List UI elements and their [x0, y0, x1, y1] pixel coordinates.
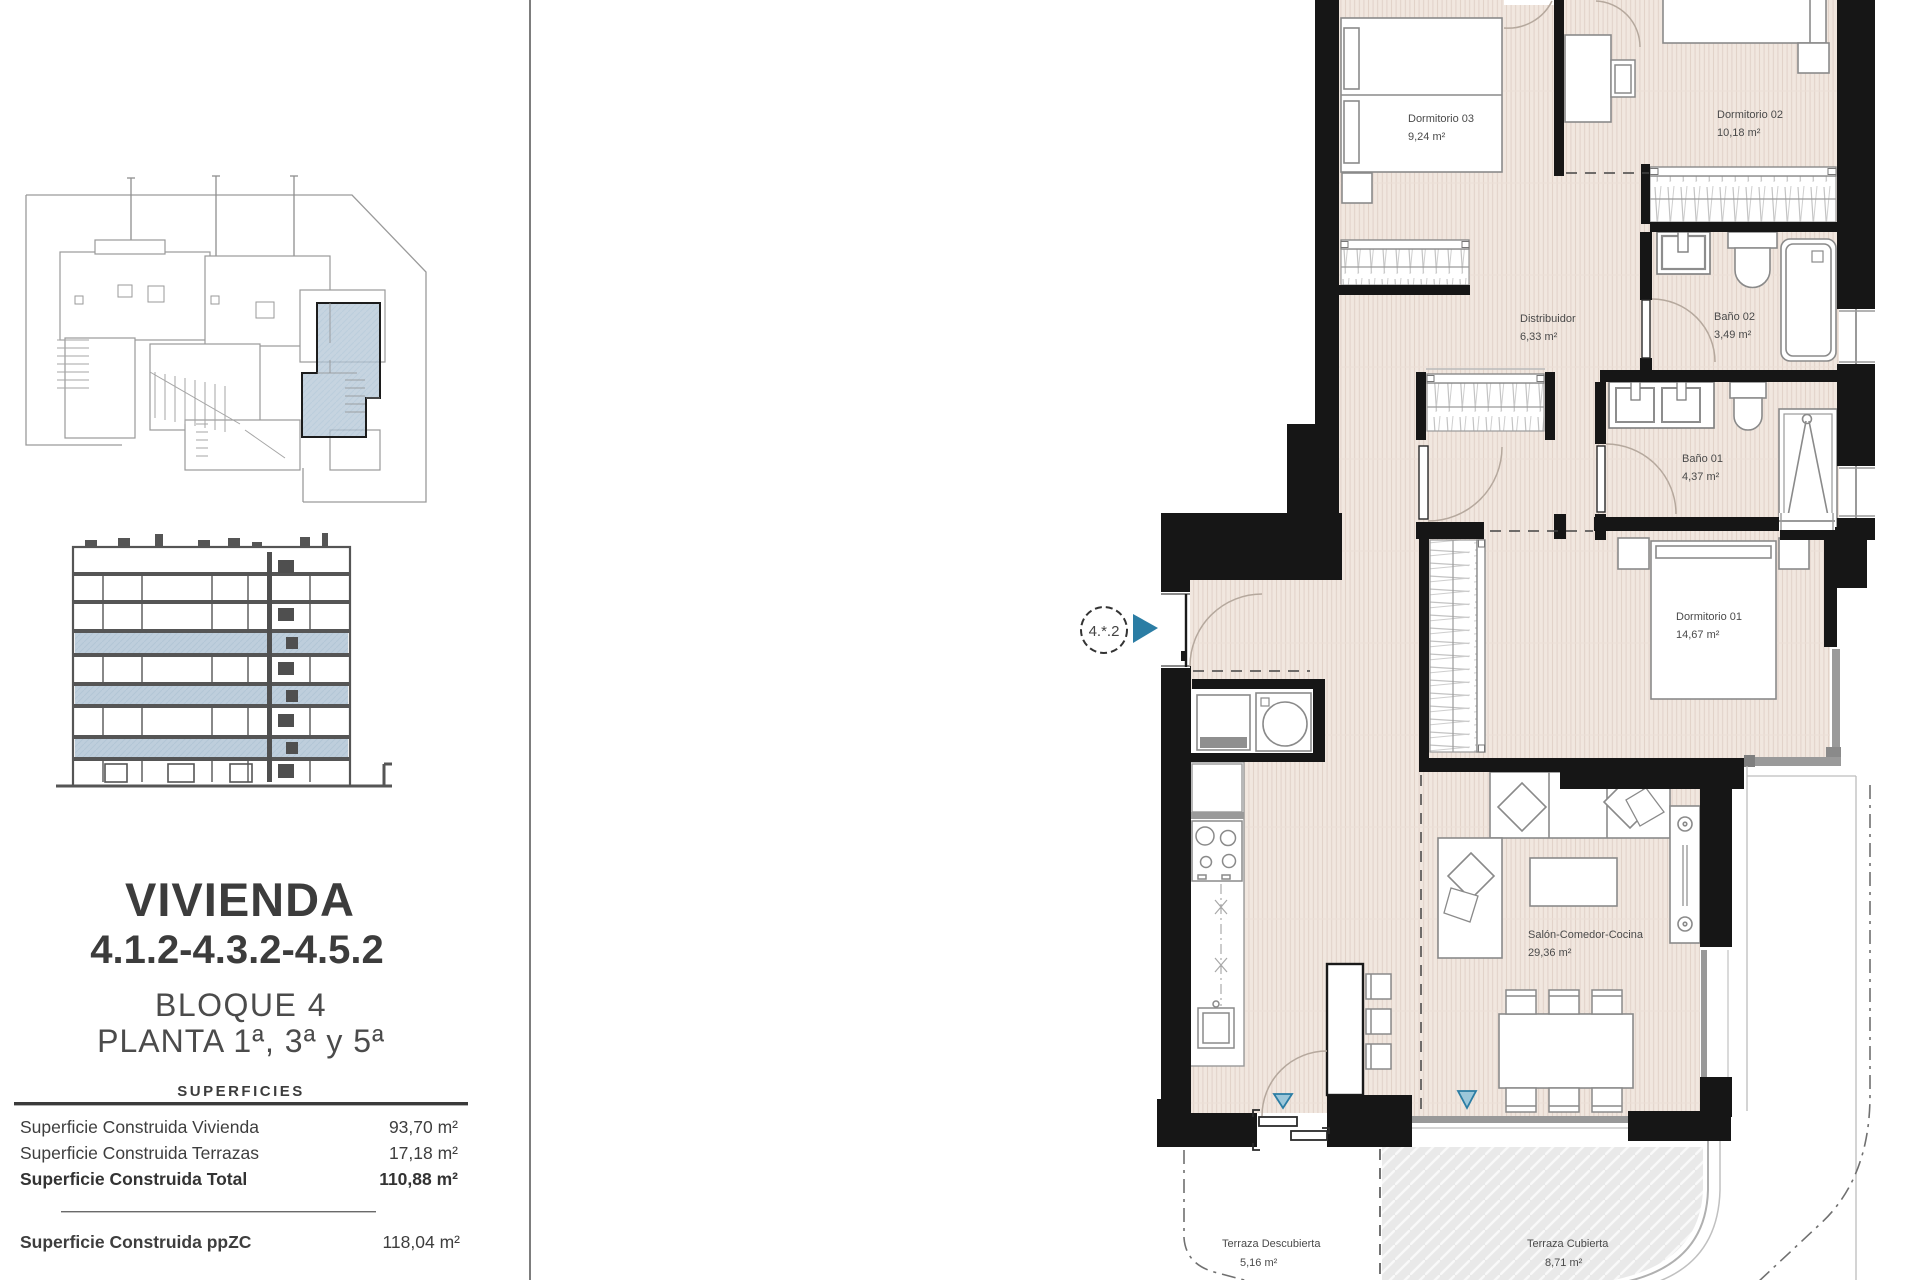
- svg-text:Dormitorio 01: Dormitorio 01: [1676, 611, 1742, 623]
- svg-text:17,18 m²: 17,18 m²: [389, 1143, 458, 1163]
- svg-text:Dormitorio 02: Dormitorio 02: [1717, 109, 1783, 121]
- svg-text:Salón-Comedor-Cocina: Salón-Comedor-Cocina: [1528, 929, 1644, 941]
- svg-text:Terraza Descubierta: Terraza Descubierta: [1222, 1238, 1321, 1250]
- svg-text:PLANTA 1ª, 3ª y 5ª: PLANTA 1ª, 3ª y 5ª: [97, 1023, 385, 1059]
- svg-text:29,36 m²: 29,36 m²: [1528, 947, 1572, 959]
- svg-text:VIVIENDA: VIVIENDA: [125, 873, 355, 926]
- svg-text:93,70 m²: 93,70 m²: [389, 1117, 458, 1137]
- svg-text:Superficie Construida ppZC: Superficie Construida ppZC: [20, 1232, 252, 1252]
- svg-text:Distribuidor: Distribuidor: [1520, 313, 1576, 325]
- svg-text:BLOQUE 4: BLOQUE 4: [155, 987, 327, 1023]
- svg-text:Superficie Construida Total: Superficie Construida Total: [20, 1169, 247, 1189]
- svg-text:Superficie Construida Vivienda: Superficie Construida Vivienda: [20, 1117, 259, 1137]
- svg-text:Dormitorio 03: Dormitorio 03: [1408, 113, 1474, 125]
- svg-text:3,49 m²: 3,49 m²: [1714, 329, 1752, 341]
- svg-text:4.1.2-4.3.2-4.5.2: 4.1.2-4.3.2-4.5.2: [90, 928, 384, 972]
- svg-text:8,71 m²: 8,71 m²: [1545, 1257, 1583, 1269]
- svg-text:9,24 m²: 9,24 m²: [1408, 131, 1446, 143]
- svg-text:Baño 01: Baño 01: [1682, 453, 1723, 465]
- svg-text:4,37 m²: 4,37 m²: [1682, 471, 1720, 483]
- svg-text:Baño 02: Baño 02: [1714, 311, 1755, 323]
- svg-text:Superficie Construida Terrazas: Superficie Construida Terrazas: [20, 1143, 259, 1163]
- svg-text:6,33 m²: 6,33 m²: [1520, 331, 1558, 343]
- svg-text:Terraza Cubierta: Terraza Cubierta: [1527, 1238, 1609, 1250]
- svg-text:14,67 m²: 14,67 m²: [1676, 629, 1720, 641]
- svg-text:110,88 m²: 110,88 m²: [379, 1169, 458, 1189]
- svg-text:5,16 m²: 5,16 m²: [1240, 1257, 1278, 1269]
- svg-text:4.*.2: 4.*.2: [1089, 623, 1120, 640]
- svg-text:10,18 m²: 10,18 m²: [1717, 127, 1761, 139]
- svg-text:SUPERFICIES: SUPERFICIES: [177, 1083, 305, 1100]
- svg-text:118,04 m²: 118,04 m²: [383, 1232, 461, 1252]
